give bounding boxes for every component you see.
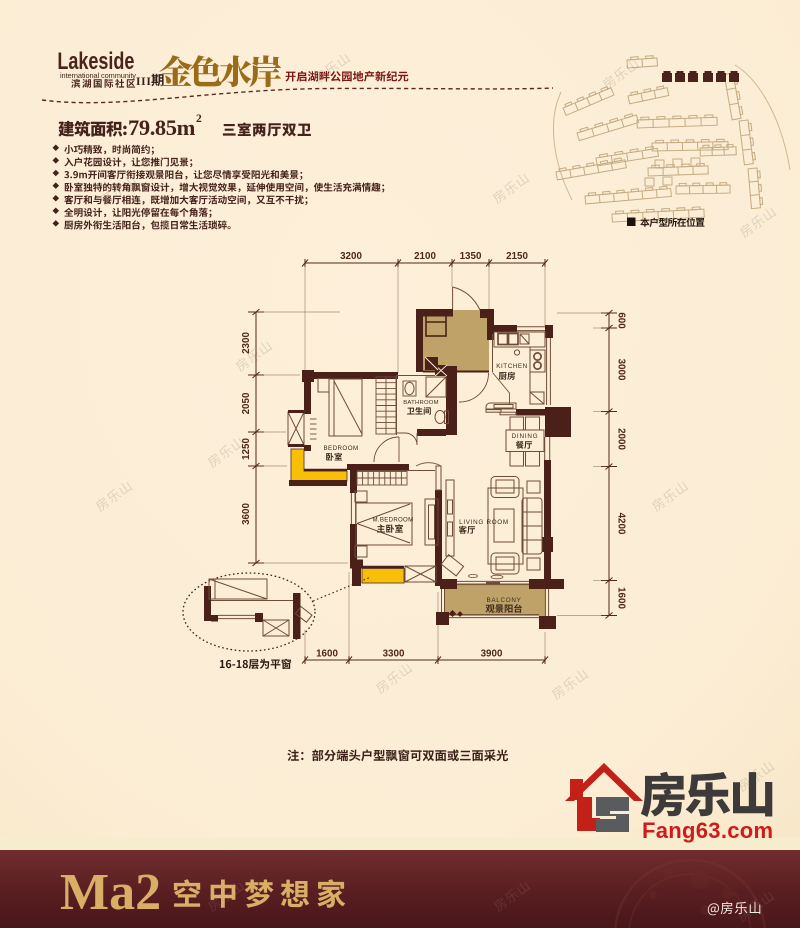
svg-text:KITCHEN: KITCHEN xyxy=(496,363,528,370)
svg-text:Fang63.com: Fang63.com xyxy=(642,818,773,843)
svg-text:DINING: DINING xyxy=(512,433,539,440)
svg-text:BALCONY: BALCONY xyxy=(487,597,522,604)
svg-text:79.85m: 79.85m xyxy=(128,115,196,140)
svg-text:600: 600 xyxy=(616,312,627,329)
svg-text:2050: 2050 xyxy=(241,392,252,414)
svg-text:BEDROOM: BEDROOM xyxy=(323,445,358,452)
svg-text:2: 2 xyxy=(196,113,202,125)
svg-text:1350: 1350 xyxy=(460,251,482,262)
svg-text:Ma2: Ma2 xyxy=(60,864,161,921)
svg-text:1600: 1600 xyxy=(616,587,627,609)
svg-text:1600: 1600 xyxy=(316,649,338,660)
svg-text:2150: 2150 xyxy=(506,251,528,262)
svg-text:2100: 2100 xyxy=(414,251,436,262)
svg-text:LIVING ROOM: LIVING ROOM xyxy=(459,519,509,526)
svg-text:international community: international community xyxy=(60,71,136,80)
svg-text:III: III xyxy=(136,76,152,88)
svg-text:2300: 2300 xyxy=(241,332,252,354)
svg-text:3300: 3300 xyxy=(383,649,405,660)
svg-text:1250: 1250 xyxy=(241,438,252,460)
svg-text:3000: 3000 xyxy=(616,359,627,381)
svg-text:3900: 3900 xyxy=(481,649,503,660)
svg-text:3200: 3200 xyxy=(340,251,362,262)
svg-text:4200: 4200 xyxy=(616,513,627,535)
svg-text:2000: 2000 xyxy=(616,428,627,450)
svg-text:3600: 3600 xyxy=(241,503,252,525)
svg-text:BATHROOM: BATHROOM xyxy=(403,400,439,406)
svg-text:M.BEDROOM: M.BEDROOM xyxy=(373,517,414,524)
